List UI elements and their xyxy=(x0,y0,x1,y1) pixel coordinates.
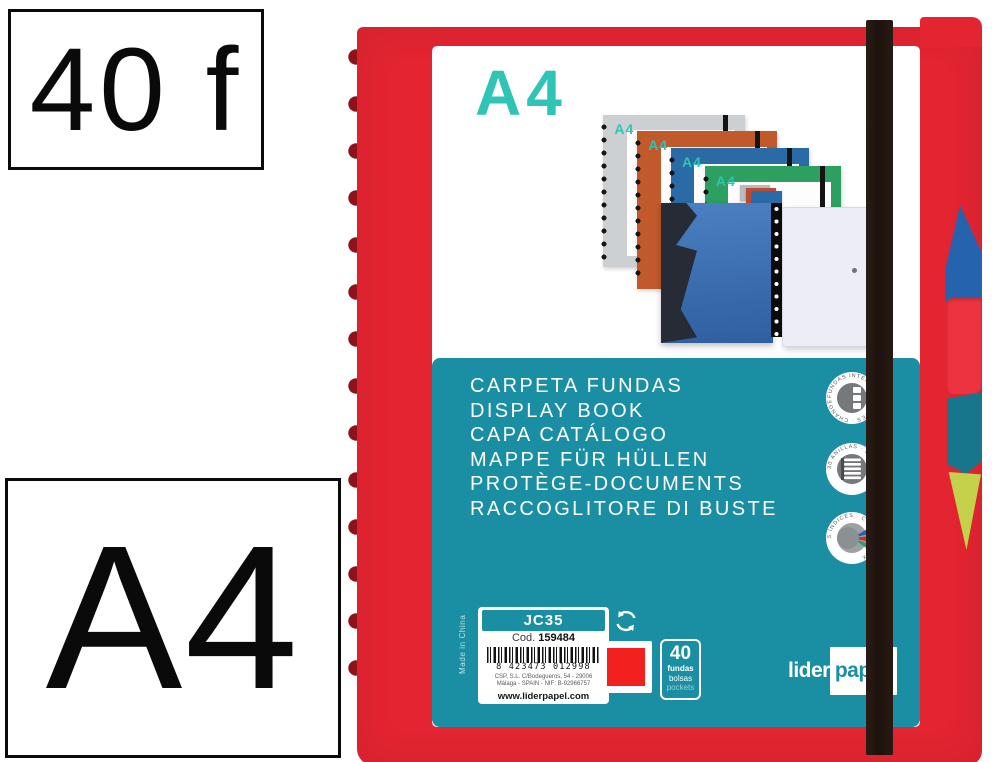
product-info-card: JC35 Cod. 159484 8 423473 012998 CSP, S.… xyxy=(478,607,609,704)
spiral-binding xyxy=(633,137,643,282)
sheet-count-badge: 40 f xyxy=(8,9,264,170)
barcode-digits: 8 423473 012998 xyxy=(478,663,609,672)
quantity-box: 40 fundas bolsas pockets xyxy=(660,639,701,700)
banner-line: PROTÈGE-DOCUMENTS xyxy=(470,472,778,497)
index-tab-red xyxy=(947,298,982,394)
multilanguage-title: CARPETA FUNDAS DISPLAY BOOK CAPA CATÁLOG… xyxy=(470,374,778,522)
open-book-spiral xyxy=(771,203,782,337)
format-label: A4 xyxy=(46,500,301,736)
product-title-banner: CARPETA FUNDAS DISPLAY BOOK CAPA CATÁLOG… xyxy=(432,358,920,727)
manufacturer-address: CSP, S.L. C/Bodegueros, 54 - 29006 Málag… xyxy=(478,674,609,688)
pocket-count: 40 xyxy=(662,643,699,664)
recycle-icon xyxy=(613,608,639,634)
banner-line: MAPPE FÜR HÜLLEN xyxy=(470,448,778,473)
format-badge: A4 xyxy=(5,478,341,758)
snap-button xyxy=(852,268,857,273)
made-in-label: Made in China xyxy=(458,596,467,674)
barcode xyxy=(487,647,600,663)
banner-line: DISPLAY BOOK xyxy=(470,399,778,424)
index-tab-teal xyxy=(947,392,982,474)
back-cover-top-tab xyxy=(920,17,982,47)
spiral-binding xyxy=(599,121,609,261)
front-label-panel: A4 A4 A4 A4 xyxy=(432,46,920,727)
banner-line: RACCOGLITORE DI BUSTE xyxy=(470,497,778,522)
color-swatch-red xyxy=(607,648,645,686)
thumbnail-format-label: A4 xyxy=(648,137,668,153)
brand-logo-part1: lider xyxy=(788,659,830,683)
product-code: Cod. 159484 xyxy=(478,632,609,645)
banner-line: CAPA CATÁLOGO xyxy=(470,423,778,448)
model-code: JC35 xyxy=(482,610,605,631)
thumbnail-format-label: A4 xyxy=(682,154,702,170)
thumbnail-format-label: A4 xyxy=(614,121,634,137)
elastic-closure-band xyxy=(866,20,893,755)
banner-line: CARPETA FUNDAS xyxy=(470,374,778,399)
color-swatch-frame xyxy=(600,641,652,693)
open-book-cover xyxy=(782,207,869,347)
product-listing-image: 40 f A4 A4 A4 xyxy=(0,0,1000,762)
thumbnail-format-label: A4 xyxy=(716,173,736,189)
display-book-product: A4 A4 A4 A4 xyxy=(345,17,982,757)
website-url: www.liderpapel.com xyxy=(478,691,609,702)
sheet-count-label: 40 f xyxy=(30,22,243,158)
